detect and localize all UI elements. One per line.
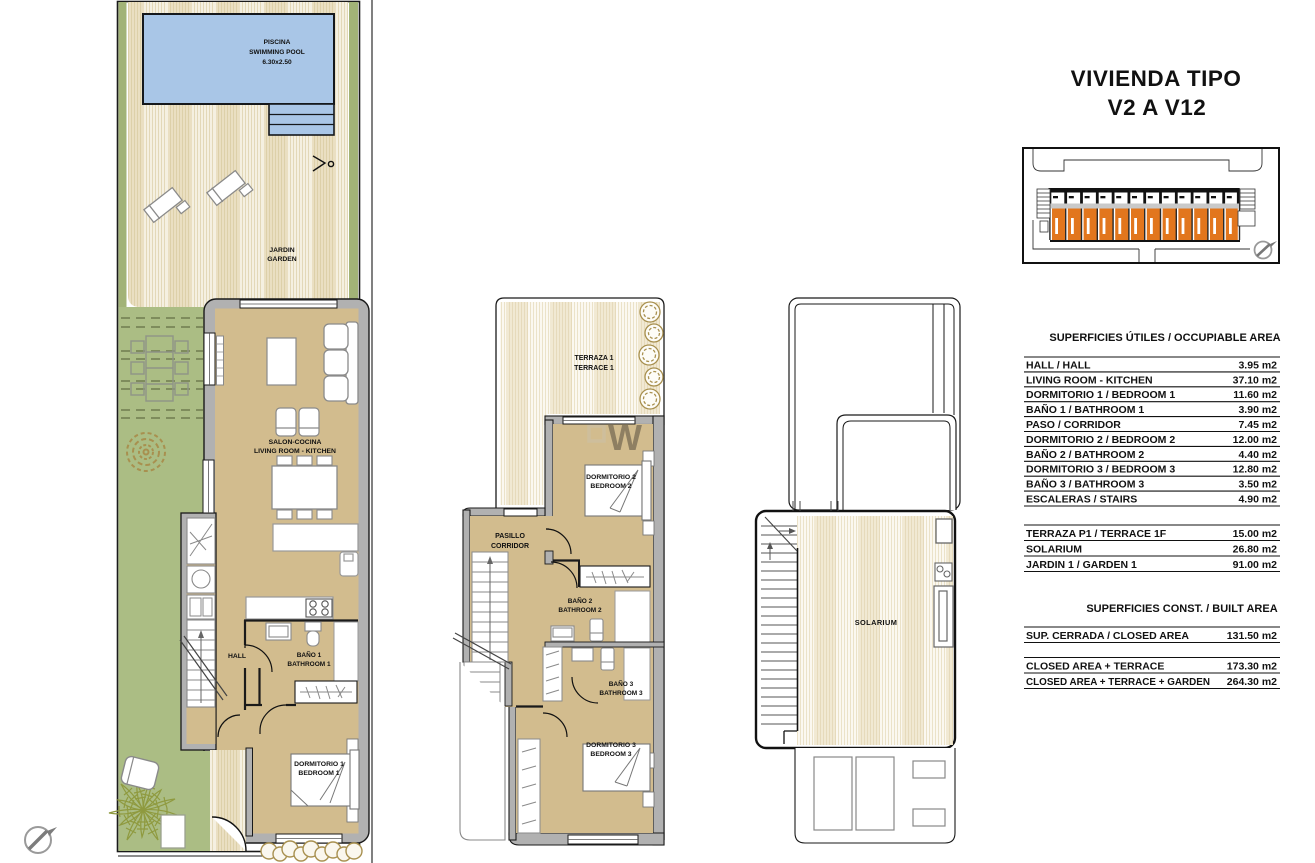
svg-text:TERRAZA P1 / TERRACE 1F: TERRAZA P1 / TERRACE 1F (1026, 528, 1167, 540)
svg-text:HALL / HALL: HALL / HALL (1026, 359, 1091, 371)
svg-text:12.80 m2: 12.80 m2 (1233, 464, 1278, 476)
svg-text:15.00 m2: 15.00 m2 (1233, 528, 1278, 540)
svg-text:TERRACE 1: TERRACE 1 (574, 365, 614, 372)
svg-text:SWIMMING POOL: SWIMMING POOL (249, 49, 305, 56)
svg-text:37.10 m2: 37.10 m2 (1233, 374, 1278, 386)
svg-text:BAÑO 3: BAÑO 3 (609, 679, 634, 688)
svg-text:131.50 m2: 131.50 m2 (1227, 630, 1277, 642)
svg-text:91.00 m2: 91.00 m2 (1233, 559, 1278, 571)
svg-text:BATHROOM 3: BATHROOM 3 (599, 690, 643, 697)
svg-text:PISCINA: PISCINA (264, 39, 291, 46)
svg-text:DORMITORIO 1 / BEDROOM 1: DORMITORIO 1 / BEDROOM 1 (1026, 389, 1175, 401)
svg-text:BAÑO 2 / BATHROOM 2: BAÑO 2 / BATHROOM 2 (1026, 448, 1144, 461)
svg-text:173.30 m2: 173.30 m2 (1227, 661, 1277, 673)
svg-text:SUPERFICIES ÚTILES / OCCUPIABL: SUPERFICIES ÚTILES / OCCUPIABLE AREA (1049, 331, 1280, 344)
svg-text:26.80 m2: 26.80 m2 (1233, 544, 1278, 556)
svg-text:CLOSED AREA + TERRACE: CLOSED AREA + TERRACE (1026, 661, 1164, 673)
svg-text:DORMITORIO 2 / BEDROOM 2: DORMITORIO 2 / BEDROOM 2 (1026, 434, 1175, 446)
svg-text:BATHROOM 1: BATHROOM 1 (287, 661, 331, 668)
svg-text:6.30x2.50: 6.30x2.50 (262, 59, 292, 66)
svg-text:BAÑO 3 / BATHROOM 3: BAÑO 3 / BATHROOM 3 (1026, 478, 1144, 491)
svg-text:TERRAZA 1: TERRAZA 1 (574, 355, 613, 362)
svg-text:JARDIN: JARDIN (269, 247, 294, 254)
svg-text:CORRIDOR: CORRIDOR (491, 543, 529, 550)
svg-text:3.95 m2: 3.95 m2 (1238, 359, 1277, 371)
svg-text:LIVING ROOM - KITCHEN: LIVING ROOM - KITCHEN (254, 448, 336, 455)
svg-text:VIVIENDA TIPO: VIVIENDA TIPO (1071, 66, 1242, 91)
svg-text:7.45 m2: 7.45 m2 (1238, 419, 1277, 431)
svg-text:LIVING ROOM - KITCHEN: LIVING ROOM - KITCHEN (1026, 374, 1153, 386)
svg-text:4.40 m2: 4.40 m2 (1238, 449, 1277, 461)
svg-text:3.90 m2: 3.90 m2 (1238, 404, 1277, 416)
svg-text:SUPERFICIES CONST. / BUILT AR: SUPERFICIES CONST. / BUILT AREA (1086, 603, 1277, 615)
svg-text:BEDROOM 1: BEDROOM 1 (298, 770, 339, 777)
svg-text:BATHROOM 2: BATHROOM 2 (558, 607, 602, 614)
svg-text:SOLARIUM: SOLARIUM (855, 618, 898, 627)
svg-text:11.60 m2: 11.60 m2 (1233, 389, 1277, 401)
svg-text:JARDIN 1 / GARDEN 1: JARDIN 1 / GARDEN 1 (1026, 559, 1137, 571)
svg-text:GARDEN: GARDEN (267, 256, 297, 263)
svg-text:PASILLO: PASILLO (495, 533, 525, 540)
svg-text:CLOSED AREA + TERRACE + GARDEN: CLOSED AREA + TERRACE + GARDEN (1026, 676, 1210, 688)
svg-text:SUP. CERRADA / CLOSED AREA: SUP. CERRADA / CLOSED AREA (1026, 630, 1189, 642)
svg-text:PASO / CORRIDOR: PASO / CORRIDOR (1026, 419, 1121, 431)
svg-text:BAÑO 1: BAÑO 1 (297, 650, 322, 659)
svg-text:SALON-COCINA: SALON-COCINA (269, 439, 322, 446)
svg-text:264.30 m2: 264.30 m2 (1227, 676, 1277, 688)
svg-text:BEDROOM 2: BEDROOM 2 (590, 483, 631, 490)
svg-text:DORMITORIO 2: DORMITORIO 2 (586, 474, 636, 481)
svg-text:3.50 m2: 3.50 m2 (1238, 479, 1277, 491)
svg-text:HALL: HALL (228, 653, 246, 660)
svg-text:12.00 m2: 12.00 m2 (1233, 434, 1278, 446)
svg-text:BAÑO 2: BAÑO 2 (568, 596, 593, 605)
svg-text:DORMITORIO 1: DORMITORIO 1 (294, 761, 344, 768)
svg-text:DORMITORIO 3 / BEDROOM 3: DORMITORIO 3 / BEDROOM 3 (1026, 464, 1175, 476)
svg-text:V2 A V12: V2 A V12 (1108, 95, 1207, 120)
svg-text:SOLARIUM: SOLARIUM (1026, 544, 1082, 556)
svg-text:BAÑO 1 / BATHROOM 1: BAÑO 1 / BATHROOM 1 (1026, 403, 1144, 416)
svg-text:DORMITORIO 3: DORMITORIO 3 (586, 742, 636, 749)
svg-text:BEDROOM 3: BEDROOM 3 (590, 751, 631, 758)
svg-text:ESCALERAS / STAIRS: ESCALERAS / STAIRS (1026, 494, 1137, 506)
svg-text:4.90 m2: 4.90 m2 (1238, 494, 1277, 506)
